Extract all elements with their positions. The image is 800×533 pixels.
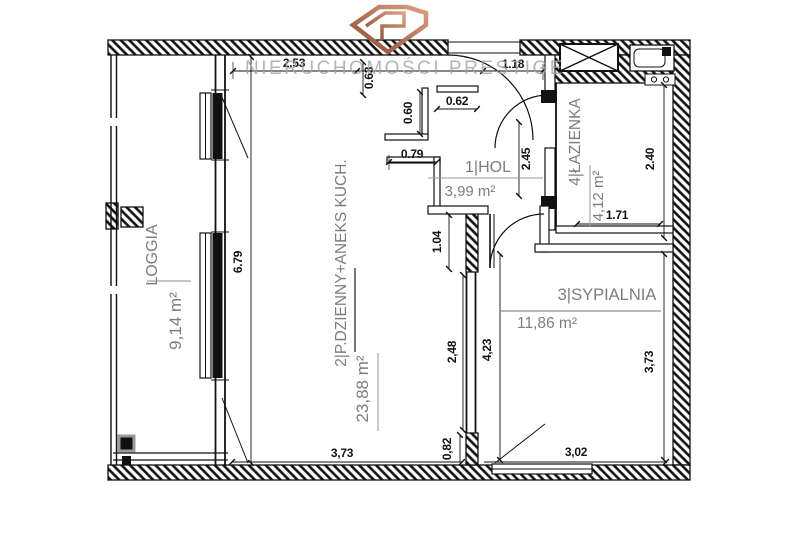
column-marker bbox=[119, 436, 134, 451]
dim-bedroom-width: 3,02 bbox=[565, 445, 588, 459]
dim-kitchen-height: 0.60 bbox=[401, 101, 415, 124]
dim-bathroom-height: 2.40 bbox=[643, 147, 657, 170]
dim-bedroom-left: 4,23 bbox=[480, 338, 494, 361]
room-area-living: 23,88 m² bbox=[353, 355, 372, 422]
room-label-bathroom: 4|ŁAZIENKA bbox=[567, 98, 584, 186]
room-area-bathroom: 4,12 m² bbox=[590, 171, 607, 222]
dim-living-width: 3,73 bbox=[331, 446, 354, 460]
dim-bathroom-width: 1.71 bbox=[606, 208, 629, 222]
wall-bottom bbox=[108, 465, 690, 480]
room-area-bedroom: 11,86 m² bbox=[517, 315, 577, 332]
floor-plan: 2.53 0.63 1.18 0.62 0.60 0.79 2.45 1.04 … bbox=[0, 0, 800, 533]
wall-stub-left-b bbox=[121, 207, 143, 227]
room-area-loggia: 9,14 m² bbox=[166, 292, 185, 350]
dim-bottom-small: 0,82 bbox=[440, 437, 454, 460]
room-label-bedroom: 3|SYPIALNIA bbox=[558, 286, 657, 304]
meter-box bbox=[645, 74, 675, 85]
dim-hall-width: 0.62 bbox=[446, 94, 469, 108]
room-label-loggia: LOGGIA bbox=[144, 224, 161, 286]
dim-wall-living: 2,48 bbox=[445, 340, 459, 363]
dim-living-height: 6.79 bbox=[231, 250, 245, 273]
watermark-text: NIERUCHOMOŚCI PRESTIGE bbox=[245, 57, 565, 79]
room-label-hol: 1|HOL bbox=[465, 159, 511, 176]
wall-right bbox=[673, 55, 690, 465]
dim-wall-hall: 1.04 bbox=[430, 230, 444, 253]
room-area-hol: 3,99 m² bbox=[445, 183, 496, 200]
wall-stub-living-bottom bbox=[466, 433, 478, 465]
dim-hall-height: 2.45 bbox=[519, 147, 533, 170]
dim-bedroom-height: 3,73 bbox=[642, 350, 656, 373]
room-label-living: 2|P.DZIENNY+ANEKS KUCH. bbox=[333, 159, 350, 366]
door-hinge-block-top bbox=[541, 90, 557, 103]
floorplan-page: 2.53 0.63 1.18 0.62 0.60 0.79 2.45 1.04 … bbox=[0, 0, 800, 533]
wall-stub-hall-bedroom bbox=[466, 210, 478, 272]
dim-kitchen-width: 0.79 bbox=[401, 147, 424, 161]
column-marker-small bbox=[122, 456, 131, 465]
